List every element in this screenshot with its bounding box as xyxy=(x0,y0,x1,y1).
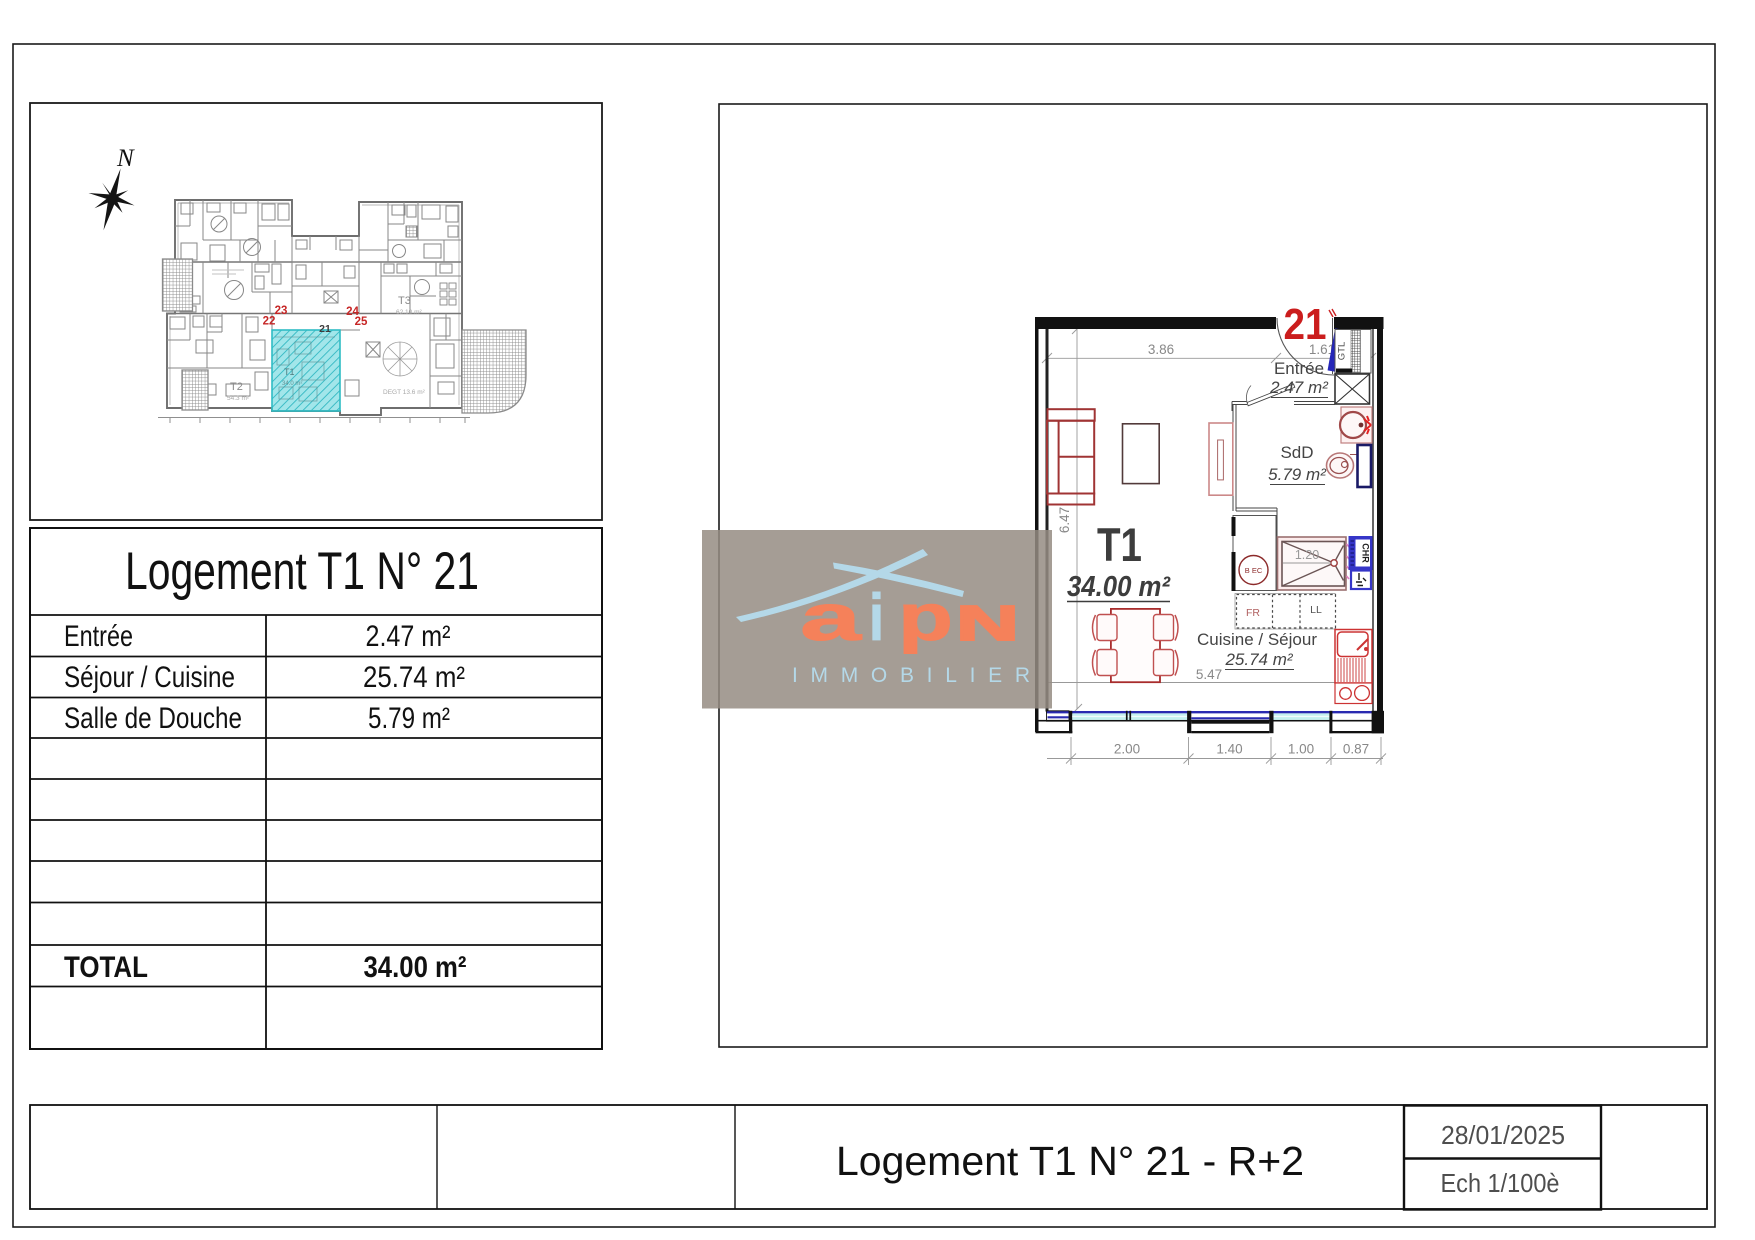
svg-text:Ech 1/100è: Ech 1/100è xyxy=(1441,1168,1560,1198)
svg-text:5.79 m²: 5.79 m² xyxy=(1268,465,1327,484)
svg-text:Logement T1 N° 21: Logement T1 N° 21 xyxy=(125,542,479,601)
svg-text:i: i xyxy=(869,580,884,654)
svg-text:a: a xyxy=(800,580,863,654)
svg-text:CHR: CHR xyxy=(1361,543,1371,563)
svg-text:1.20: 1.20 xyxy=(1295,548,1319,562)
svg-text:62.10 m²: 62.10 m² xyxy=(396,309,422,316)
svg-text:Cuisine / Séjour: Cuisine / Séjour xyxy=(1197,630,1317,649)
svg-text:5.79 m²: 5.79 m² xyxy=(368,702,450,735)
svg-text:T1: T1 xyxy=(1097,518,1142,571)
svg-text:1.40: 1.40 xyxy=(1216,742,1242,757)
svg-text:N: N xyxy=(956,597,1019,651)
svg-text:28/01/2025: 28/01/2025 xyxy=(1441,1120,1565,1150)
svg-text:Salle de Douche: Salle de Douche xyxy=(64,702,242,735)
svg-text:23: 23 xyxy=(275,305,288,317)
svg-text:T3: T3 xyxy=(398,295,411,307)
svg-text:2.47 m²: 2.47 m² xyxy=(1269,378,1329,397)
svg-text:LL: LL xyxy=(1310,604,1322,616)
svg-text:3.86: 3.86 xyxy=(1148,342,1174,357)
svg-text:TOTAL: TOTAL xyxy=(64,951,148,984)
svg-text:2.47 m²: 2.47 m² xyxy=(366,620,451,653)
svg-text:p: p xyxy=(898,580,953,654)
svg-text:6.47: 6.47 xyxy=(1057,507,1072,533)
svg-text:21: 21 xyxy=(1284,300,1327,349)
svg-text:GTL: GTL xyxy=(1337,342,1348,360)
svg-text:34.0 m²: 34.0 m² xyxy=(282,381,302,387)
svg-text:DEGT 13.6 m²: DEGT 13.6 m² xyxy=(383,389,426,396)
svg-text:T2: T2 xyxy=(230,381,243,393)
svg-text:Entrée: Entrée xyxy=(64,620,133,653)
svg-text:21: 21 xyxy=(319,323,331,335)
svg-text:0.87: 0.87 xyxy=(1343,742,1369,757)
svg-text:54.3 m²: 54.3 m² xyxy=(227,395,250,402)
svg-text:IMMOBILIER: IMMOBILIER xyxy=(792,664,1030,687)
svg-text:FR: FR xyxy=(1246,607,1260,619)
svg-text:2.00: 2.00 xyxy=(1114,742,1140,757)
svg-text:34.00 m²: 34.00 m² xyxy=(364,951,467,984)
svg-text:34.00 m²: 34.00 m² xyxy=(1067,571,1171,603)
svg-text:25.74 m²: 25.74 m² xyxy=(363,661,465,694)
svg-text:Séjour / Cuisine: Séjour / Cuisine xyxy=(64,661,235,694)
svg-text:Logement T1 N° 21 - R+2: Logement T1 N° 21 - R+2 xyxy=(836,1138,1304,1184)
svg-text:5.47: 5.47 xyxy=(1196,667,1222,682)
svg-text:T1: T1 xyxy=(284,367,295,377)
svg-text:B EC: B EC xyxy=(1245,566,1263,575)
svg-text:22: 22 xyxy=(263,316,276,328)
svg-text:1.00: 1.00 xyxy=(1288,742,1314,757)
svg-text:SdD: SdD xyxy=(1280,443,1313,462)
svg-text:Entrée: Entrée xyxy=(1274,359,1324,378)
svg-text:N: N xyxy=(116,145,135,172)
svg-text:25: 25 xyxy=(355,316,368,328)
svg-text:25.74 m²: 25.74 m² xyxy=(1224,650,1293,669)
